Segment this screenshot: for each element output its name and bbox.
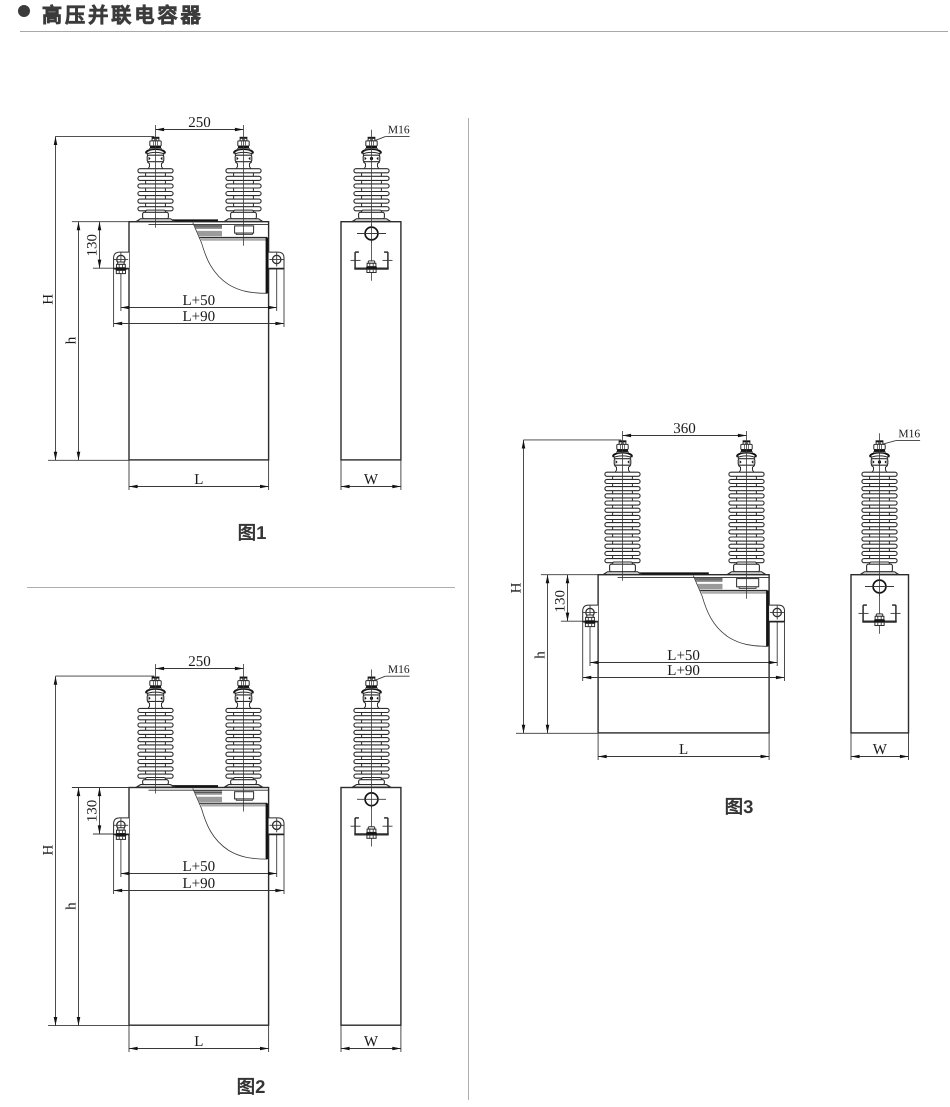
svg-text:M16: M16 <box>898 428 920 440</box>
svg-text:250: 250 <box>188 654 211 670</box>
svg-text:130: 130 <box>553 590 569 613</box>
svg-text:L+90: L+90 <box>182 876 215 892</box>
svg-text:M16: M16 <box>388 124 410 136</box>
svg-text:130: 130 <box>85 800 101 823</box>
svg-text:W: W <box>364 472 379 488</box>
svg-text:L: L <box>194 472 203 488</box>
svg-text:L+90: L+90 <box>182 309 215 325</box>
svg-text:H: H <box>41 294 57 305</box>
svg-text:图1: 图1 <box>238 522 267 543</box>
svg-text:h: h <box>64 336 80 344</box>
svg-text:H: H <box>41 845 57 856</box>
svg-text:360: 360 <box>673 421 696 437</box>
svg-text:L+50: L+50 <box>667 648 700 664</box>
svg-text:250: 250 <box>188 115 211 131</box>
svg-text:130: 130 <box>85 234 101 256</box>
svg-text:W: W <box>873 742 888 758</box>
svg-text:L: L <box>194 1034 203 1050</box>
svg-text:L: L <box>679 742 688 758</box>
svg-text:h: h <box>533 651 549 659</box>
svg-text:图2: 图2 <box>237 1076 266 1097</box>
svg-text:M16: M16 <box>388 664 410 676</box>
svg-text:h: h <box>64 902 80 910</box>
svg-text:图3: 图3 <box>725 796 754 817</box>
svg-text:W: W <box>364 1034 379 1050</box>
svg-text:L+50: L+50 <box>182 859 215 875</box>
svg-text:L+50: L+50 <box>182 293 215 309</box>
svg-text:H: H <box>509 582 525 593</box>
svg-text:L+90: L+90 <box>667 663 700 679</box>
